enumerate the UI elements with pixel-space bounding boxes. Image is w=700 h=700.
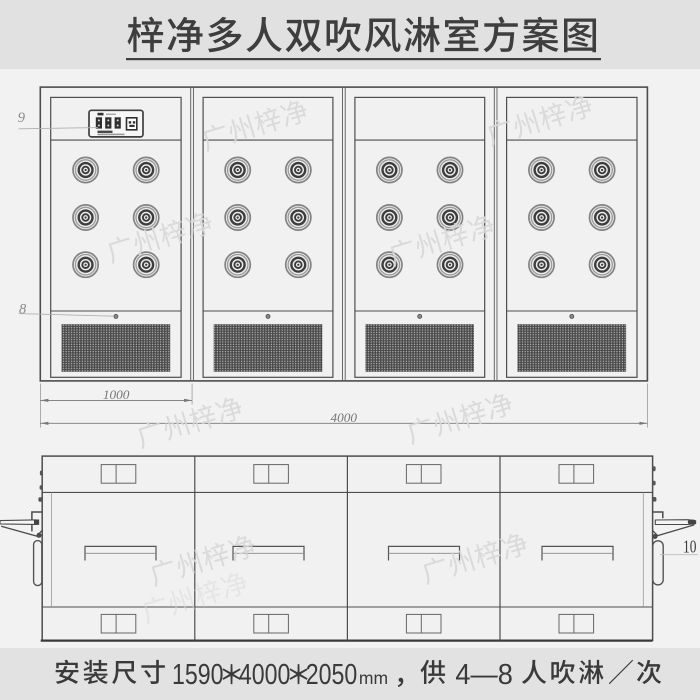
svg-text:1000: 1000 bbox=[103, 387, 130, 402]
svg-text:4000: 4000 bbox=[239, 659, 291, 691]
svg-text:1590: 1590 bbox=[172, 659, 224, 691]
svg-text:mm: mm bbox=[359, 668, 388, 688]
svg-text:10: 10 bbox=[683, 537, 696, 557]
svg-text:4000: 4000 bbox=[331, 410, 358, 425]
svg-text:8: 8 bbox=[19, 302, 27, 318]
svg-text:9: 9 bbox=[18, 110, 26, 126]
svg-text:4—8: 4—8 bbox=[455, 659, 513, 691]
svg-text:2050: 2050 bbox=[306, 659, 358, 691]
